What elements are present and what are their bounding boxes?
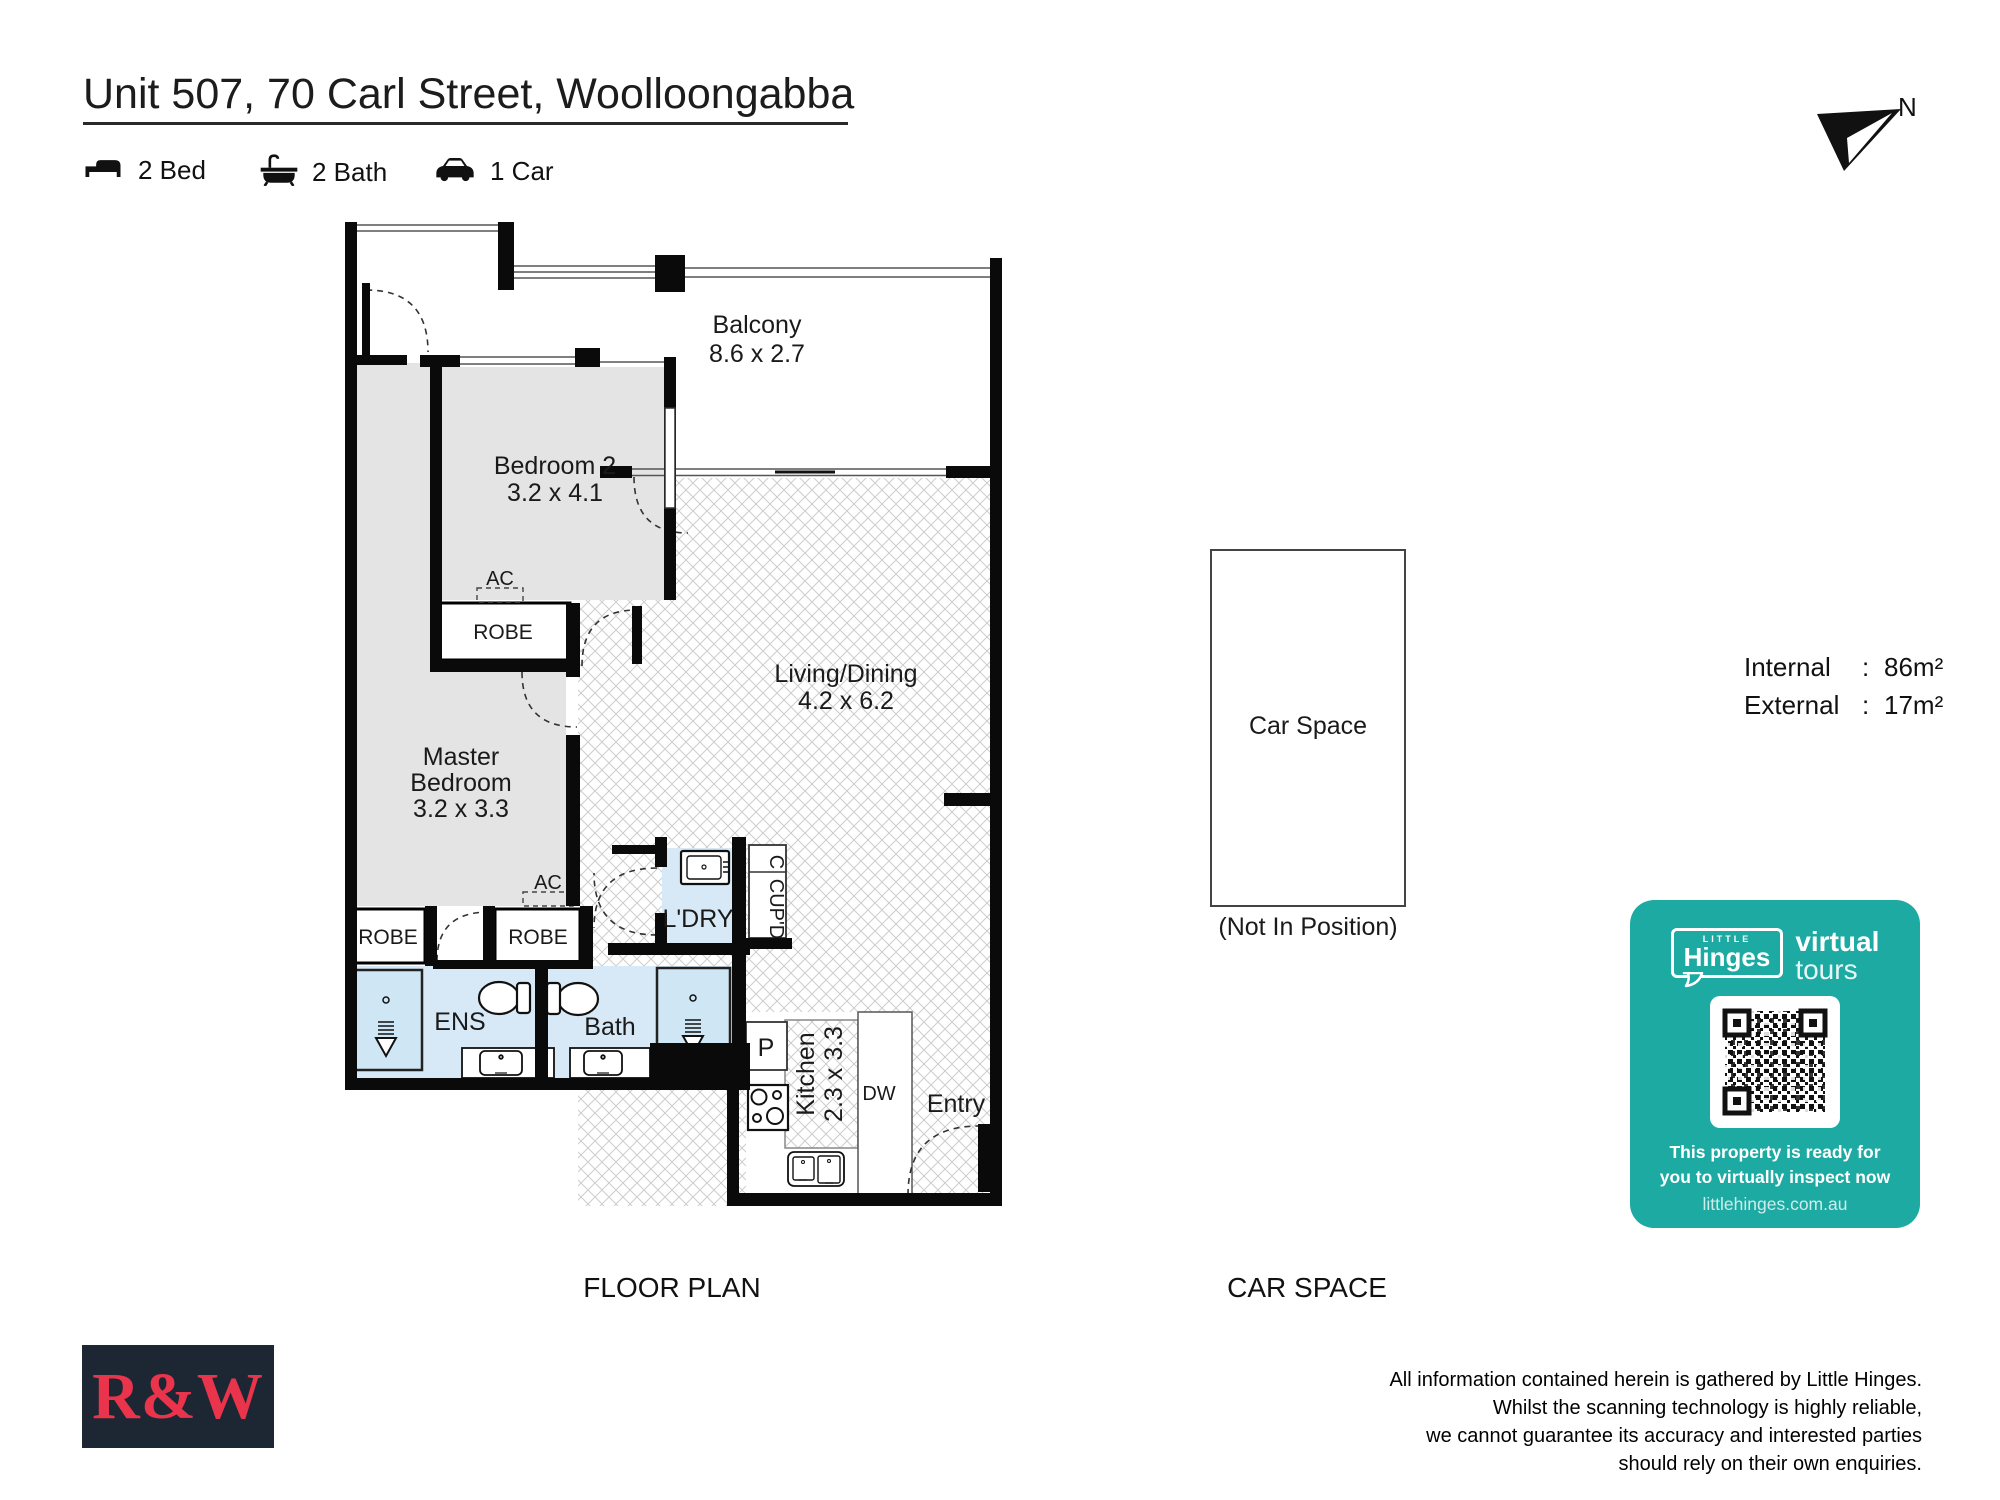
floor-plan: Balcony 8.6 x 2.7 Bedroom 2 3.2 x 4.1 Li…: [340, 215, 1010, 1215]
internal-label: Internal: [1744, 652, 1862, 683]
external-label: External: [1744, 690, 1862, 721]
internal-colon: :: [1862, 652, 1884, 683]
car-space-label: Car Space: [1210, 712, 1406, 741]
disclaimer: All information contained herein is gath…: [1389, 1366, 1922, 1478]
speech-bubble-tail-icon: [1682, 972, 1708, 988]
virtual-tour-card: LITTLE Hinges virtual tours: [1630, 900, 1920, 1228]
car-space-section-label: CAR SPACE: [1227, 1272, 1387, 1304]
car-space-note: (Not In Position): [1160, 913, 1456, 942]
cupboard-label: CUP'D: [765, 879, 787, 940]
bedroom2-dims: 3.2 x 4.1: [507, 479, 603, 507]
ac-master-label: AC: [534, 872, 562, 894]
qr-code: [1710, 996, 1840, 1128]
feature-car-label: 1 Car: [490, 156, 554, 187]
master-name-1: Master: [423, 743, 499, 771]
kitchen-name: Kitchen: [792, 1032, 820, 1115]
kitchen-sink: [788, 1152, 844, 1186]
living-name: Living/Dining: [774, 660, 917, 688]
feature-bath: 2 Bath: [258, 152, 387, 193]
virtual-tours-label: virtual tours: [1795, 928, 1879, 984]
robe-right-label: ROBE: [508, 926, 568, 949]
north-label: N: [1898, 92, 1917, 123]
feature-bed: 2 Bed: [80, 152, 206, 189]
bath-label: Bath: [584, 1013, 635, 1041]
disclaimer-line-4: should rely on their own enquiries.: [1389, 1450, 1922, 1478]
feature-bed-label: 2 Bed: [138, 155, 206, 186]
north-arrow-icon: [1810, 100, 1910, 180]
external-value: 17m²: [1884, 690, 1943, 721]
vanity-bath: [570, 1048, 650, 1078]
feature-bath-label: 2 Bath: [312, 157, 387, 188]
balcony-name: Balcony: [713, 311, 802, 339]
master-name-2: Bedroom: [410, 769, 511, 797]
hinges-speech-bubble: LITTLE Hinges: [1671, 928, 1784, 978]
bath-icon: [258, 152, 300, 193]
stove: [748, 1085, 788, 1130]
virtual-tour-text-line2: you to virtually inspect now: [1630, 1165, 1920, 1190]
laundry-label: L'DRY: [662, 905, 733, 933]
toilet-ens: [479, 982, 530, 1014]
virtual-tour-text-line1: This property is ready for: [1630, 1140, 1920, 1165]
virtual-tour-text: This property is ready for you to virtua…: [1630, 1140, 1920, 1191]
laundry-tub: [681, 851, 729, 884]
entry-label: Entry: [927, 1090, 986, 1118]
living-dims: 4.2 x 6.2: [798, 687, 894, 715]
shower-ens: [350, 970, 422, 1070]
floorplan-page: Unit 507, 70 Carl Street, Woolloongabba …: [0, 0, 2000, 1500]
floor-plan-section-label: FLOOR PLAN: [583, 1272, 760, 1304]
pantry-label: P: [758, 1034, 775, 1062]
feature-car: 1 Car: [432, 152, 554, 191]
disclaimer-line-2: Whilst the scanning technology is highly…: [1389, 1394, 1922, 1422]
dishwasher-label: DW: [862, 1083, 895, 1105]
page-title: Unit 507, 70 Carl Street, Woolloongabba: [83, 70, 854, 119]
robe-left-label: ROBE: [358, 926, 418, 949]
virtual-label: virtual: [1795, 928, 1879, 956]
master-dims: 3.2 x 3.3: [413, 795, 509, 823]
kitchen-dims: 2.3 x 3.3: [820, 1026, 848, 1122]
robe-bedroom2-label: ROBE: [473, 621, 533, 644]
title-underline: [83, 122, 848, 125]
external-colon: :: [1862, 690, 1884, 721]
rw-logo: R&W: [82, 1345, 274, 1448]
ensuite-label: ENS: [434, 1008, 485, 1036]
bedroom2-window: [665, 408, 675, 508]
rw-logo-text: R&W: [92, 1359, 264, 1435]
area-table: Internal : 86m² External : 17m²: [1744, 652, 1943, 721]
ac-bedroom2-label: AC: [486, 568, 514, 590]
car-icon: [432, 152, 478, 191]
hinges-url: littlehinges.com.au: [1630, 1194, 1920, 1215]
bedroom2-name: Bedroom 2: [494, 452, 616, 480]
hinges-logo: LITTLE Hinges virtual tours: [1630, 900, 1920, 984]
toilet-bath: [547, 983, 598, 1015]
hinges-brand-label: Hinges: [1684, 944, 1771, 970]
bed-icon: [80, 152, 126, 189]
disclaimer-line-3: we cannot guarantee its accuracy and int…: [1389, 1422, 1922, 1450]
disclaimer-line-1: All information contained herein is gath…: [1389, 1366, 1922, 1394]
tours-label: tours: [1795, 956, 1879, 984]
balcony-dims: 8.6 x 2.7: [709, 340, 805, 368]
cupboard-c-label: C: [765, 855, 787, 869]
internal-value: 86m²: [1884, 652, 1943, 683]
